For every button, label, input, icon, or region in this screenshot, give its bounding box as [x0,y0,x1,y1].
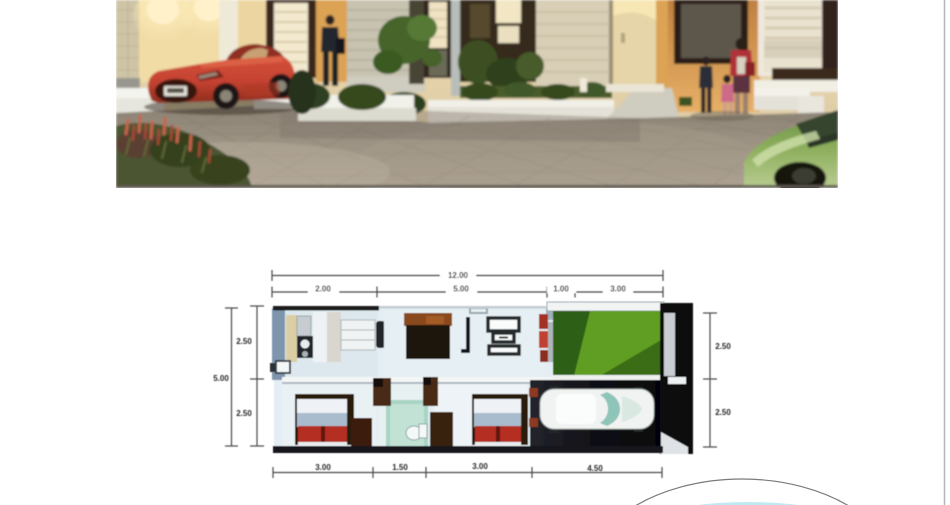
svg-text:3.00: 3.00 [315,463,331,472]
svg-text:2.00: 2.00 [315,285,331,294]
svg-text:1.00: 1.00 [553,285,569,294]
svg-text:3.00: 3.00 [610,285,626,294]
svg-text:2.50: 2.50 [715,342,731,351]
svg-text:3.00: 3.00 [472,462,488,471]
svg-text:1.50: 1.50 [392,463,408,472]
svg-text:2.50: 2.50 [236,409,252,418]
svg-text:2.50: 2.50 [236,337,252,346]
svg-text:5.00: 5.00 [213,374,229,383]
svg-text:12.00: 12.00 [448,271,469,280]
svg-text:4.50: 4.50 [587,464,603,473]
svg-text:5.00: 5.00 [453,285,469,294]
svg-text:2.50: 2.50 [715,408,731,417]
